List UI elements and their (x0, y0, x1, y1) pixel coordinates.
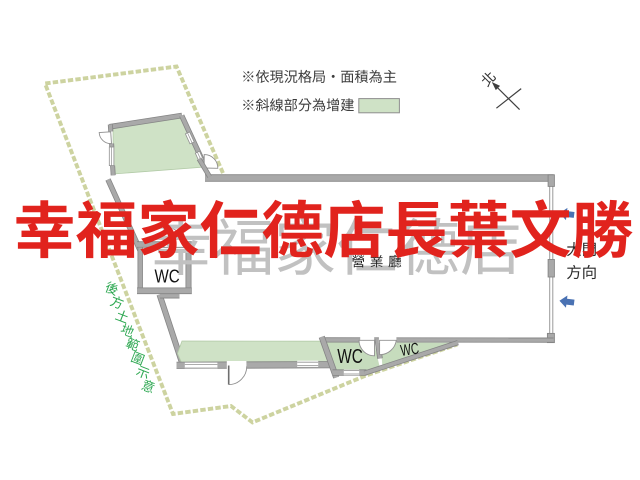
svg-text:WC: WC (337, 345, 363, 368)
svg-text:WC: WC (155, 267, 180, 287)
svg-text:WC: WC (399, 341, 420, 360)
